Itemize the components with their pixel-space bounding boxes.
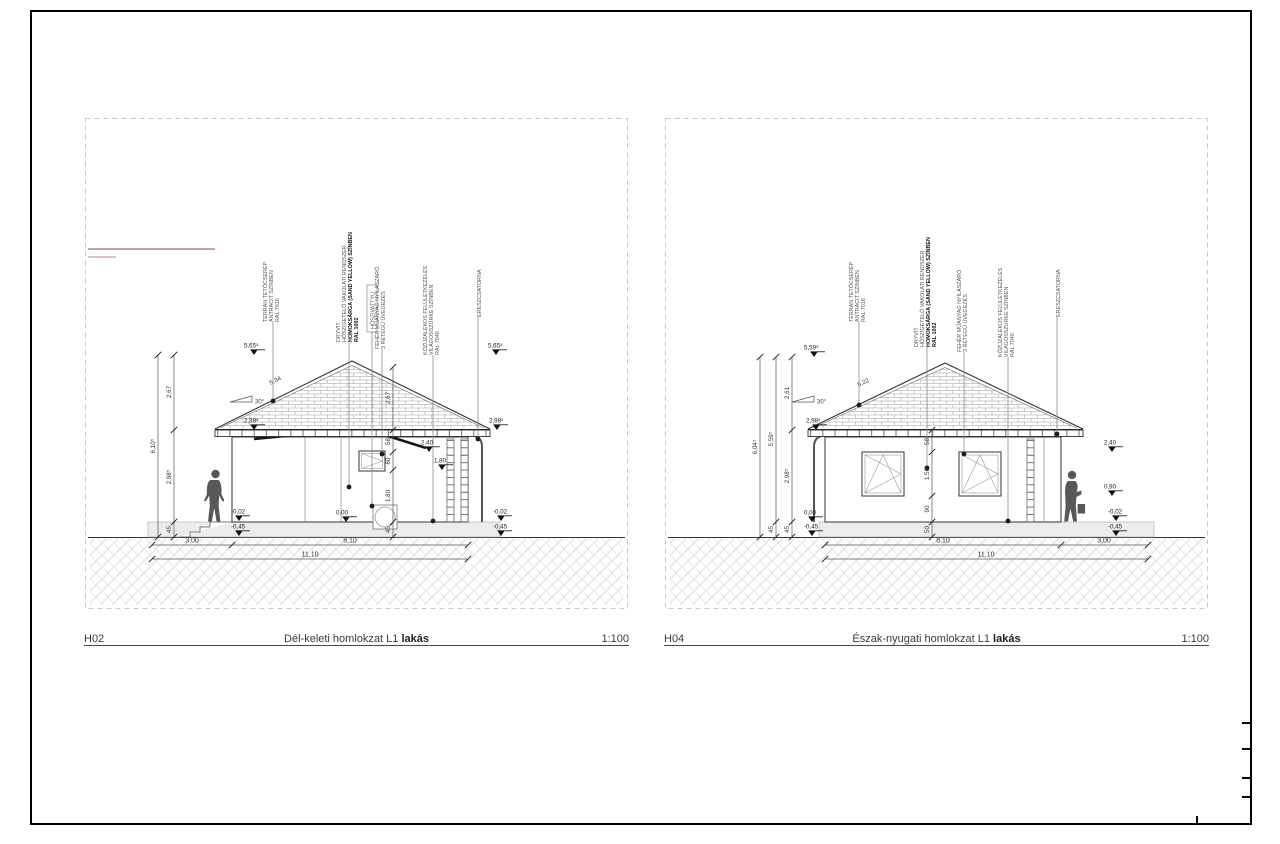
svg-text:-0,45: -0,45 (493, 524, 508, 531)
slope-angle-label: 30° (817, 400, 827, 406)
svg-text:RAL 7040: RAL 7040 (435, 331, 441, 355)
hip-roof (808, 363, 1083, 429)
svg-text:2,67: 2,67 (385, 391, 392, 404)
svg-text:58: 58 (385, 438, 392, 445)
svg-text:3 RÉTEGŰ ÜVEGEZÉS: 3 RÉTEGŰ ÜVEGEZÉS (962, 294, 969, 352)
svg-text:0,90: 0,90 (1104, 484, 1117, 491)
svg-text:RAL 1002: RAL 1002 (354, 318, 360, 342)
drawing-scale: 1:100 (539, 633, 629, 645)
svg-text:6,04⁵: 6,04⁵ (752, 439, 759, 454)
porch-post (447, 439, 454, 522)
svg-text:-0,02: -0,02 (493, 509, 508, 516)
height-dim-chain: 6,04⁵ 5,59⁵ 45 2,61 2,98⁵ 45 (752, 354, 795, 540)
fold-tick (1196, 816, 1198, 823)
svg-text:RAL 7040: RAL 7040 (1010, 333, 1016, 357)
eaves-band (808, 429, 1083, 436)
svg-text:VILÁGOSSZÜRKE SZÍNBEN: VILÁGOSSZÜRKE SZÍNBEN (1003, 286, 1010, 357)
terrace-slab (819, 522, 1154, 537)
slope-angle-label: 30° (255, 400, 265, 406)
svg-text:-0,45: -0,45 (1108, 524, 1123, 531)
revision-marks (88, 249, 215, 257)
svg-text:2,40: 2,40 (421, 440, 434, 447)
svg-text:90: 90 (924, 505, 931, 512)
svg-text:1,80: 1,80 (434, 458, 447, 465)
svg-text:5,65⁵: 5,65⁵ (488, 343, 503, 350)
svg-text:5,59⁵: 5,59⁵ (768, 431, 775, 446)
svg-text:-0,02: -0,02 (231, 509, 246, 516)
svg-text:2,98⁵: 2,98⁵ (806, 418, 821, 425)
drawing-title: Észak-nyugati homlokzat L1 lakás (754, 633, 1119, 645)
svg-text:HOMOKSÁRGA (SAND YELLOW) SZÍNB: HOMOKSÁRGA (SAND YELLOW) SZÍNBEN (346, 232, 354, 342)
porch-post (461, 439, 468, 522)
svg-text:ERESZCSATORNA: ERESZCSATORNA (1056, 269, 1062, 317)
svg-text:2,98⁵: 2,98⁵ (166, 469, 173, 484)
gutter-downpipe (474, 436, 482, 522)
svg-text:58: 58 (924, 438, 931, 445)
fold-tick (1242, 777, 1250, 779)
svg-text:HŐSZIGETELŐ VAKOLATI RENDSZER: HŐSZIGETELŐ VAKOLATI RENDSZER (341, 245, 348, 342)
svg-text:8,10: 8,10 (936, 538, 950, 545)
drawing-code: H02 (84, 633, 174, 645)
leader-gutter: ERESZCSATORNA (1055, 269, 1062, 436)
svg-text:2,61: 2,61 (784, 386, 791, 399)
svg-text:2,40: 2,40 (1104, 440, 1117, 447)
svg-text:11,10: 11,10 (978, 552, 995, 559)
elevation-panel-h02: 30° 5,34 TERRAN TETŐCSERÉP ANTRACIT SZÍN… (84, 117, 629, 610)
svg-text:45: 45 (768, 526, 775, 533)
svg-text:5,59⁵: 5,59⁵ (804, 345, 819, 352)
svg-text:1,80: 1,80 (385, 489, 392, 502)
title-row-h02: H02 Dél-keleti homlokzat L1 lakás 1:100 (84, 626, 629, 646)
fold-tick (1242, 796, 1250, 798)
svg-text:45: 45 (166, 526, 173, 533)
fold-tick (1242, 748, 1250, 750)
svg-text:-0,45: -0,45 (804, 524, 819, 531)
drawing-scale: 1:100 (1119, 633, 1209, 645)
svg-text:ANTRACIT SZÍNBEN: ANTRACIT SZÍNBEN (268, 270, 275, 322)
svg-text:0,00: 0,00 (336, 510, 349, 517)
svg-text:RAL 1002: RAL 1002 (932, 323, 938, 347)
svg-text:3,00: 3,00 (185, 538, 199, 545)
ground-hatch (670, 539, 1203, 605)
eaves-band (215, 429, 490, 436)
svg-text:5,65⁵: 5,65⁵ (244, 343, 259, 350)
svg-text:60: 60 (385, 457, 392, 464)
elevation-panel-h04: 30° 5,22 TERRAN TETŐCSERÉP ANTRACIT SZÍN… (664, 117, 1209, 610)
porch-post (1027, 439, 1034, 522)
svg-text:3 RÉTEGŰ ÜVEGEZÉS: 3 RÉTEGŰ ÜVEGEZÉS (380, 291, 387, 349)
svg-text:RAL 7016: RAL 7016 (861, 298, 867, 322)
facade-wall (825, 437, 1061, 522)
person-figure (1064, 471, 1085, 522)
svg-text:VILÁGOSSZÜRKE SZÍNBEN: VILÁGOSSZÜRKE SZÍNBEN (428, 284, 435, 355)
svg-text:50: 50 (924, 526, 931, 533)
svg-text:RAL 7016: RAL 7016 (275, 298, 281, 322)
svg-text:45: 45 (784, 526, 791, 533)
window-left (862, 452, 904, 496)
person-figure (204, 470, 224, 522)
window-right (959, 452, 1001, 496)
svg-text:-0,02: -0,02 (1108, 509, 1123, 516)
drawing-sheet: 30° 5,34 TERRAN TETŐCSERÉP ANTRACIT SZÍN… (0, 0, 1280, 844)
svg-text:ANTRACIT SZÍNBEN: ANTRACIT SZÍNBEN (854, 270, 861, 322)
svg-text:6,10⁵: 6,10⁵ (150, 438, 157, 453)
svg-text:1,50: 1,50 (924, 467, 931, 480)
svg-text:HŐSZIGETELŐ VAKOLATI RENDSZER: HŐSZIGETELŐ VAKOLATI RENDSZER (919, 250, 926, 347)
slope-length-label: 5,22 (856, 377, 870, 389)
svg-text:-0,45: -0,45 (231, 524, 246, 531)
svg-text:8,10: 8,10 (343, 538, 357, 545)
svg-text:KŐZÚZALÉKOS FELÜLETKEZELÉS: KŐZÚZALÉKOS FELÜLETKEZELÉS (997, 267, 1004, 357)
svg-text:TERRAN TETŐCSERÉP: TERRAN TETŐCSERÉP (262, 261, 269, 322)
svg-text:ERESZCSATORNA: ERESZCSATORNA (477, 269, 483, 317)
svg-text:2,98⁵: 2,98⁵ (784, 468, 791, 483)
svg-text:11,10: 11,10 (302, 552, 319, 559)
ground-hatch (90, 539, 623, 605)
height-dim-chain: 6,10⁵ 2,67 2,98⁵ 45 (150, 352, 177, 540)
svg-text:2,98⁵: 2,98⁵ (244, 418, 259, 425)
leader-gutter: ERESZCSATORNA (476, 269, 483, 441)
svg-text:HOMOKSÁRGA (SAND YELLOW) SZÍNB: HOMOKSÁRGA (SAND YELLOW) SZÍNBEN (924, 237, 932, 347)
svg-text:KŐZÚZALÉKOS FELÜLETKEZELÉS: KŐZÚZALÉKOS FELÜLETKEZELÉS (422, 265, 429, 355)
drawing-title: Dél-keleti homlokzat L1 lakás (174, 633, 539, 645)
slope-length-label: 5,34 (268, 375, 282, 387)
heat-pump-unit (373, 505, 397, 529)
svg-text:2,98⁵: 2,98⁵ (489, 418, 504, 425)
svg-text:2,67: 2,67 (166, 385, 173, 398)
svg-text:0,00: 0,00 (804, 510, 817, 517)
drawing-code: H04 (664, 633, 754, 645)
svg-text:TERRAN TETŐCSERÉP: TERRAN TETŐCSERÉP (848, 261, 855, 322)
svg-text:FEHÉR MŰANYAG NYÍLÁSZÁRÓ: FEHÉR MŰANYAG NYÍLÁSZÁRÓ (956, 270, 963, 352)
svg-text:3,00: 3,00 (1097, 538, 1111, 545)
svg-text:45: 45 (385, 526, 392, 533)
title-row-h04: H04 Észak-nyugati homlokzat L1 lakás 1:1… (664, 626, 1209, 646)
fold-tick (1242, 722, 1250, 724)
svg-text:FEHÉR MŰANYAG NYÍLÁSZÁRÓ: FEHÉR MŰANYAG NYÍLÁSZÁRÓ (374, 267, 381, 349)
